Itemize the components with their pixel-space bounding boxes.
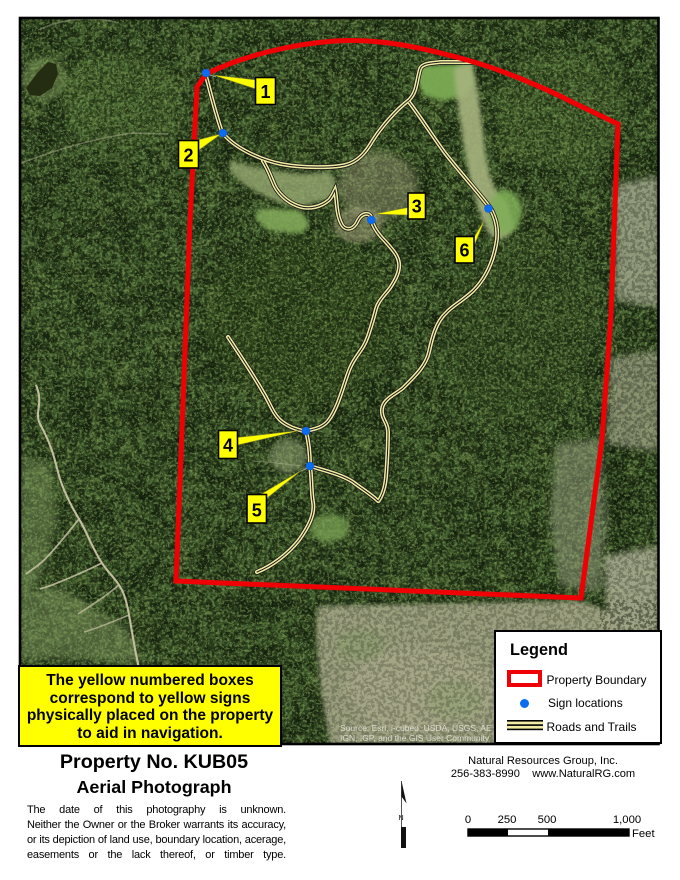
svg-text:Feet: Feet (632, 828, 655, 840)
svg-text:2: 2 (183, 146, 193, 166)
svg-text:1: 1 (260, 82, 270, 102)
svg-text:250: 250 (498, 814, 517, 826)
svg-text:1,000: 1,000 (613, 814, 641, 826)
svg-text:6: 6 (459, 241, 469, 261)
svg-text:3: 3 (412, 197, 422, 217)
svg-text:0: 0 (465, 814, 471, 826)
svg-text:5: 5 (252, 501, 262, 521)
svg-text:4: 4 (223, 436, 233, 456)
svg-text:IGN, IGP, and the GIS User Com: IGN, IGP, and the GIS User Community (340, 733, 490, 743)
svg-text:Source: Esri, i-cubed, USDA, U: Source: Esri, i-cubed, USDA, USGS, AE (340, 723, 492, 733)
svg-text:500: 500 (538, 814, 557, 826)
svg-text:N: N (399, 815, 404, 822)
